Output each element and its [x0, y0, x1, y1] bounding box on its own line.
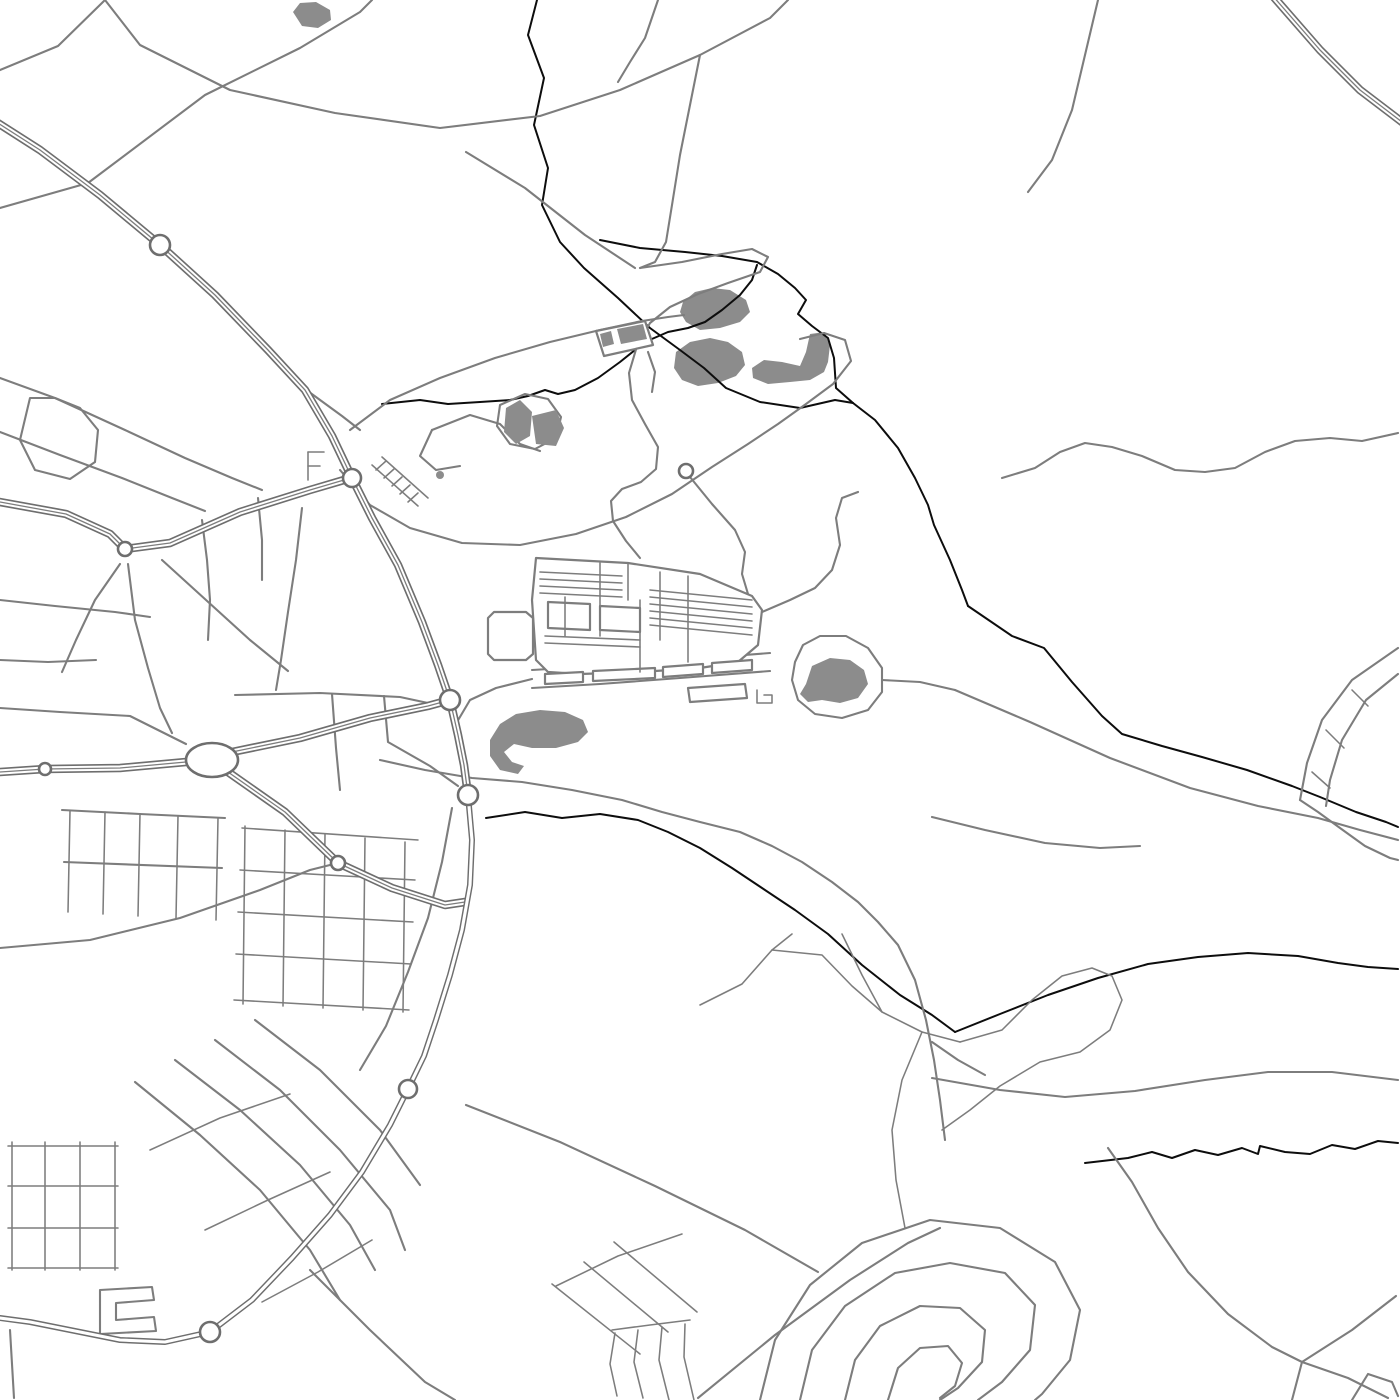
lane: [584, 1262, 668, 1332]
road: [360, 808, 452, 1070]
lane: [1312, 772, 1330, 788]
lane: [384, 469, 394, 478]
lane: [1352, 690, 1368, 706]
avenue-southeast-casing: [228, 772, 465, 905]
road: [380, 760, 945, 1140]
lane: [205, 1172, 330, 1230]
roundabout: [200, 1322, 220, 1342]
road: [420, 430, 460, 470]
stream-east-rise: [955, 953, 1398, 1032]
lane: [612, 1320, 690, 1330]
road: [0, 378, 262, 490]
lane: [150, 1094, 290, 1150]
lane: [382, 457, 428, 498]
layer-ring-road: [0, 795, 472, 1342]
road: [0, 0, 372, 208]
lane: [610, 1333, 617, 1396]
median-island: [593, 668, 655, 681]
road: [1302, 1296, 1396, 1362]
layer-thin-roads: [8, 452, 1368, 1400]
road: [0, 708, 186, 744]
lane: [757, 690, 772, 703]
road: [932, 817, 1140, 848]
road: [135, 1082, 340, 1300]
road: [618, 0, 658, 82]
lane: [403, 842, 405, 1012]
lane: [376, 461, 386, 470]
ring-arc-core: [0, 795, 472, 1342]
building: [504, 400, 532, 444]
road: [62, 810, 225, 818]
road: [0, 660, 96, 662]
road: [310, 1270, 455, 1400]
lane: [363, 838, 365, 1010]
ring-arc-casing: [0, 795, 472, 1342]
lane: [323, 834, 325, 1008]
lane: [556, 1234, 682, 1286]
stream-southeast: [486, 812, 955, 1032]
roundabout: [458, 785, 478, 805]
inner-block: [548, 602, 590, 630]
median-island: [712, 660, 752, 673]
lake-hook: [674, 338, 745, 386]
roundabout-oval: [186, 743, 238, 777]
motorway-casing: [0, 118, 468, 795]
lane: [240, 870, 415, 880]
road: [1108, 1148, 1302, 1362]
lane: [243, 826, 245, 1004]
motorway-core: [0, 118, 468, 795]
lane: [103, 812, 105, 914]
road: [64, 862, 222, 868]
roundabout: [399, 1080, 417, 1098]
map-image: [0, 0, 1400, 1400]
motorway-centerline: [0, 118, 468, 795]
compound-annex-west: [488, 612, 533, 660]
lane: [138, 814, 140, 916]
road: [1292, 1362, 1302, 1400]
road-building-outline: [100, 1287, 156, 1334]
pond-north: [293, 2, 331, 28]
avenue-west-casing: [0, 480, 344, 549]
cul-de-sac: [679, 464, 693, 478]
roundabout: [440, 690, 460, 710]
layer-junction-nodes: [39, 235, 693, 1342]
roundabout: [118, 542, 132, 556]
road: [105, 0, 788, 128]
road: [276, 508, 302, 690]
road: [202, 520, 210, 640]
lake-east-comma: [800, 658, 868, 703]
road: [1300, 648, 1398, 800]
road: [1302, 1362, 1388, 1398]
road: [10, 1330, 14, 1398]
road: [762, 492, 858, 612]
road: [882, 680, 955, 690]
lane: [400, 485, 410, 494]
river-lower: [968, 606, 1398, 827]
road: [1002, 433, 1398, 478]
roundabout: [343, 469, 361, 487]
inner-block: [600, 606, 640, 632]
road: [932, 1042, 985, 1075]
road: [255, 1020, 420, 1185]
lane: [659, 1327, 669, 1400]
stream-jagged: [1085, 1141, 1398, 1163]
road: [162, 560, 288, 671]
lane: [238, 912, 413, 922]
road: [0, 600, 150, 617]
road: [62, 564, 120, 672]
lake-boot: [752, 332, 830, 384]
median-island: [663, 664, 703, 677]
road: [648, 352, 655, 392]
roundabout: [331, 856, 345, 870]
road: [332, 694, 340, 790]
lane: [700, 934, 792, 1005]
compound-annex-south: [688, 684, 747, 702]
road: [800, 1263, 1035, 1400]
lane: [684, 1324, 694, 1400]
lane: [892, 1032, 922, 1228]
roundabout: [39, 763, 51, 775]
road: [0, 863, 338, 948]
lane: [942, 968, 1122, 1130]
road: [0, 432, 205, 511]
small-pond: [436, 471, 444, 479]
lake-west-comma: [490, 710, 588, 774]
lane: [283, 830, 285, 1006]
lane: [634, 1330, 643, 1398]
road: [1352, 1374, 1398, 1400]
lane: [234, 1000, 409, 1010]
lane: [842, 934, 882, 1012]
river-mid: [853, 403, 968, 606]
road: [640, 55, 700, 268]
map-viewport[interactable]: [0, 0, 1400, 1400]
lane: [176, 816, 178, 918]
median-island: [545, 672, 583, 684]
road: [1028, 0, 1098, 192]
lane: [242, 828, 418, 840]
lane: [772, 950, 960, 1042]
road: [128, 564, 172, 733]
road: [466, 152, 635, 268]
road: [955, 690, 1398, 840]
road-loop: [20, 398, 98, 479]
lane: [1326, 730, 1344, 748]
layer-water-dots: [436, 471, 444, 479]
road: [0, 0, 105, 70]
lane: [392, 477, 402, 486]
layer-building-fills: [504, 324, 647, 446]
road: [175, 1060, 375, 1270]
roundabout: [150, 235, 170, 255]
lane: [552, 1284, 640, 1354]
lane: [68, 811, 70, 912]
